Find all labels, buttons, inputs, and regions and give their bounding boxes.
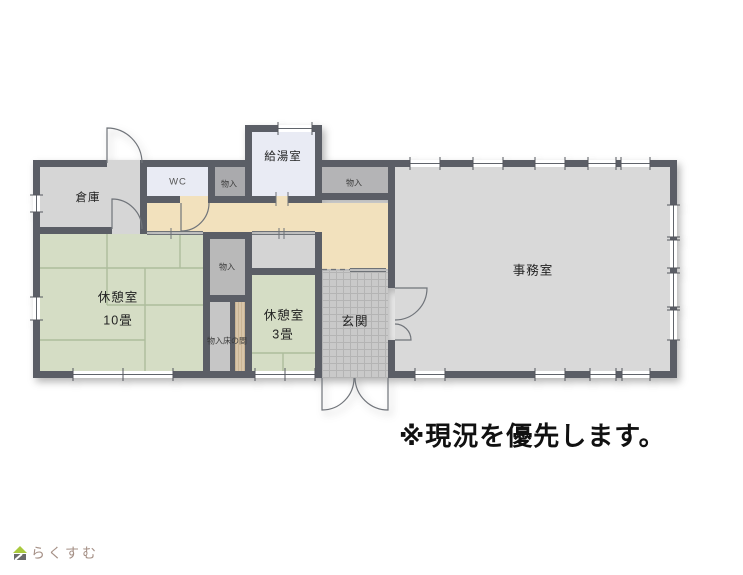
door-office-main-leaf	[395, 288, 427, 320]
door-souko-interior	[112, 199, 142, 229]
room-label-kyutoshitsu: 給湯室	[264, 148, 302, 164]
open-boundary-lines	[147, 192, 386, 272]
floorplan-canvas: 倉庫 WC 物入 給湯室 物入 休憩室 10畳 物入 物入床の間 休憩室 3畳 …	[0, 0, 743, 575]
room-label-monoire2: 物入	[346, 178, 362, 189]
door-souko-exterior	[107, 128, 142, 163]
logo-house-icon	[12, 545, 28, 561]
window-center-lines	[37, 129, 674, 375]
tatami-seam-lines	[40, 234, 315, 371]
window-end-ticks	[30, 122, 680, 381]
door-entrance-right-leaf	[355, 378, 388, 410]
room-label-kyukei3-size: 3畳	[272, 324, 293, 343]
room-label-genkan: 玄関	[341, 311, 368, 330]
room-label-kyukei10: 休憩室	[98, 287, 139, 306]
room-label-souko: 倉庫	[76, 189, 101, 205]
door-office-small-leaf	[395, 324, 411, 340]
disclaimer-note: ※現況を優先します。	[399, 416, 666, 453]
room-label-kyukei3: 休憩室	[264, 305, 305, 324]
door-entrance-left-leaf	[322, 378, 354, 410]
room-label-monoire-mid: 物入	[219, 262, 235, 273]
room-label-jimushitsu: 事務室	[513, 260, 554, 279]
room-label-monoire-tokonoma: 物入床の間	[207, 336, 247, 347]
room-label-wc: WC	[169, 177, 187, 188]
logo: らくすむ	[12, 543, 99, 563]
door-wc	[181, 203, 209, 231]
floorplan-building: 倉庫 WC 物入 給湯室 物入 休憩室 10畳 物入 物入床の間 休憩室 3畳 …	[0, 0, 743, 575]
room-label-kyukei10-size: 10畳	[103, 310, 132, 329]
logo-text: らくすむ	[31, 543, 99, 563]
room-label-monoire1: 物入	[221, 179, 237, 190]
